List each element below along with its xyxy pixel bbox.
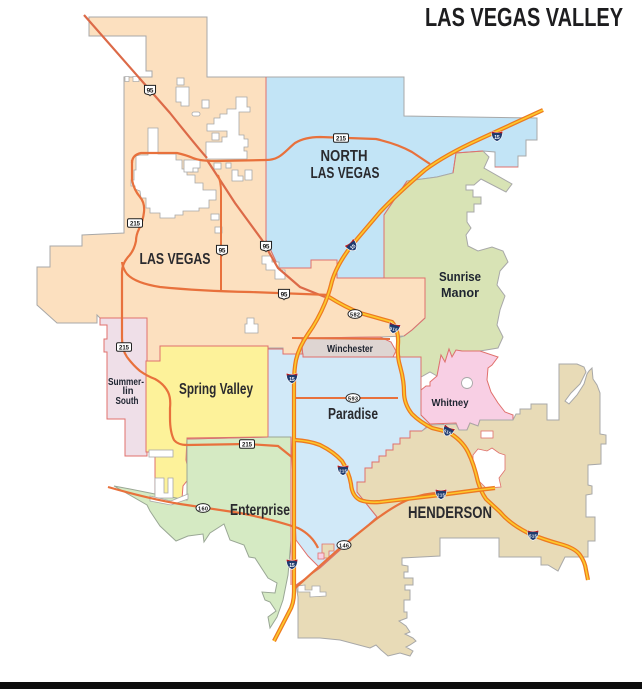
svg-text:215: 215 xyxy=(119,346,130,352)
svg-text:215: 215 xyxy=(339,469,347,474)
svg-text:LAS VEGAS: LAS VEGAS xyxy=(311,165,380,182)
svg-text:593: 593 xyxy=(348,397,358,403)
svg-text:NORTH: NORTH xyxy=(321,148,368,165)
svg-text:LAS VEGAS VALLEY: LAS VEGAS VALLEY xyxy=(425,2,623,32)
svg-text:South: South xyxy=(116,396,139,407)
svg-text:Enterprise: Enterprise xyxy=(230,502,290,519)
svg-text:582: 582 xyxy=(350,313,360,319)
svg-text:Paradise: Paradise xyxy=(328,406,378,423)
svg-text:Sunrise: Sunrise xyxy=(439,269,481,284)
svg-text:Manor: Manor xyxy=(441,285,479,300)
svg-text:95: 95 xyxy=(281,291,288,298)
svg-text:15: 15 xyxy=(494,135,500,141)
svg-text:LAS VEGAS: LAS VEGAS xyxy=(140,251,211,268)
svg-text:215: 215 xyxy=(130,222,141,228)
svg-text:Spring Valley: Spring Valley xyxy=(179,381,253,398)
svg-text:Whitney: Whitney xyxy=(432,397,469,409)
svg-text:215: 215 xyxy=(437,493,445,498)
svg-text:15: 15 xyxy=(289,563,295,569)
svg-text:160: 160 xyxy=(198,507,208,513)
svg-text:215: 215 xyxy=(336,137,347,143)
svg-text:95: 95 xyxy=(219,247,226,254)
svg-text:15: 15 xyxy=(289,377,295,383)
svg-text:Winchester: Winchester xyxy=(327,343,373,355)
svg-text:HENDERSON: HENDERSON xyxy=(408,504,492,522)
svg-text:515: 515 xyxy=(529,534,537,539)
svg-text:215: 215 xyxy=(242,443,253,449)
svg-text:95: 95 xyxy=(263,243,270,250)
svg-text:146: 146 xyxy=(339,544,349,550)
svg-text:95: 95 xyxy=(147,87,154,94)
